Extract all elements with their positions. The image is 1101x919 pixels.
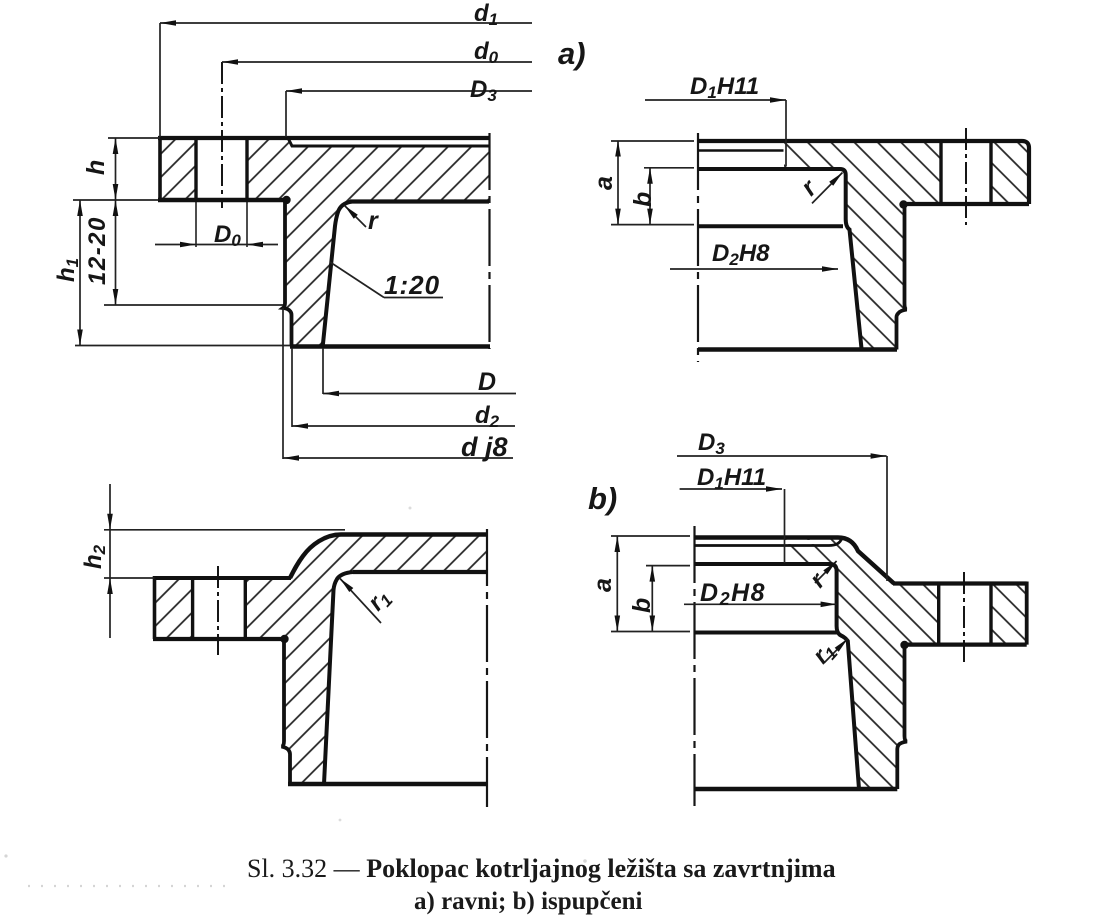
svg-text:1:20: 1:20: [384, 270, 440, 300]
svg-text:b: b: [629, 192, 657, 207]
svg-text:D2H8: D2H8: [700, 579, 766, 609]
svg-text:h: h: [82, 160, 110, 175]
svg-text:D1H11: D1H11: [697, 464, 766, 493]
svg-text:d j8: d j8: [461, 432, 508, 462]
svg-text:12-20: 12-20: [84, 216, 111, 285]
svg-text:b): b): [588, 481, 617, 516]
svg-text:D: D: [478, 368, 496, 396]
svg-text:b: b: [628, 598, 656, 613]
svg-text:r: r: [368, 207, 379, 235]
svg-text:a: a: [590, 176, 618, 190]
svg-text:a) ravni; b) ispupčeni: a) ravni; b) ispupčeni: [414, 888, 643, 915]
svg-text:D2H8: D2H8: [712, 240, 770, 269]
svg-text:D1H11: D1H11: [690, 73, 759, 102]
svg-text:a: a: [589, 578, 617, 592]
svg-text:Sl. 3.32 — Poklopac kotrlja: Sl. 3.32 — Poklopac kotrljajnog ležišta …: [247, 854, 836, 883]
svg-text:a): a): [558, 36, 586, 71]
